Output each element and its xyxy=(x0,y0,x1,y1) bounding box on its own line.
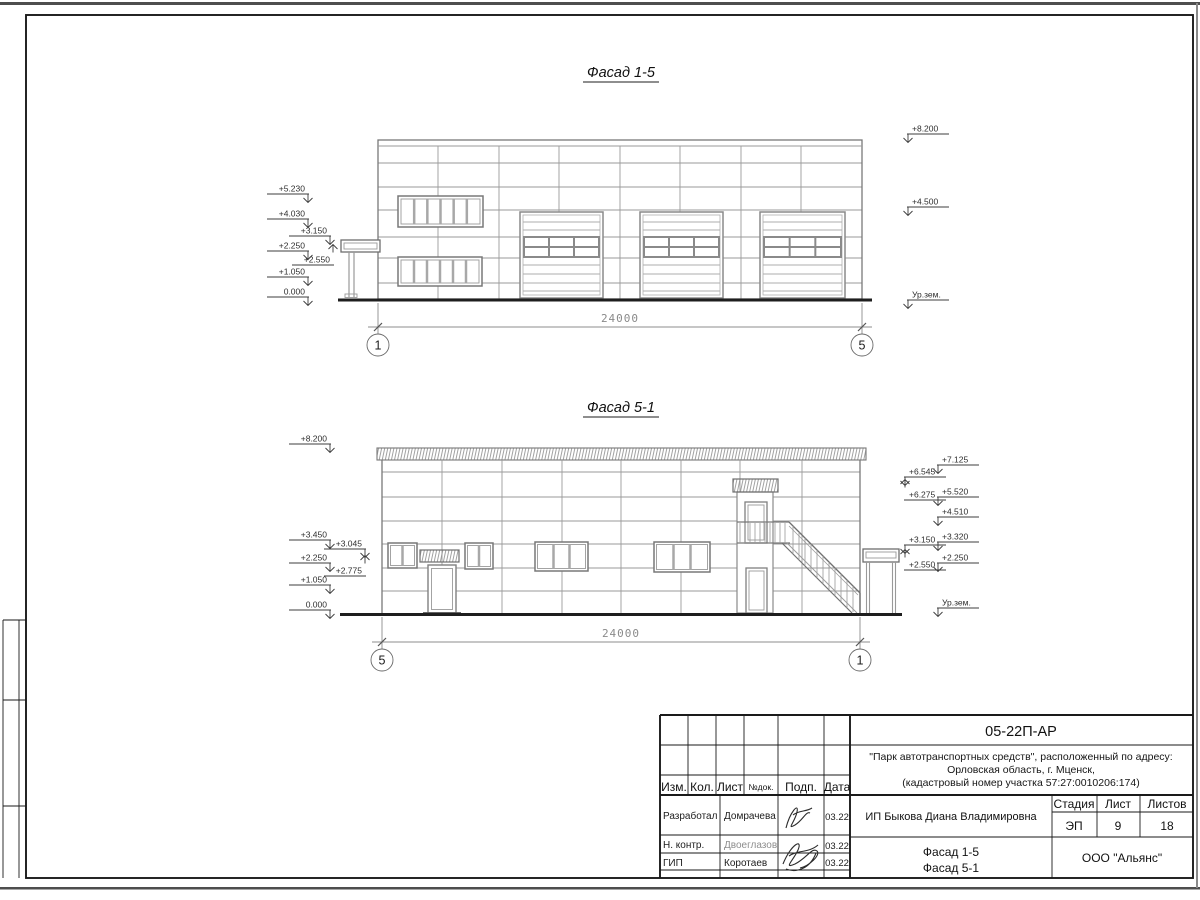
col-list: Лист xyxy=(717,780,744,794)
garage-door xyxy=(520,212,603,298)
elevation-value: 0.000 xyxy=(284,287,306,297)
col-podp: Подп. xyxy=(785,780,817,794)
row1-role: Разработал xyxy=(663,810,718,822)
elevation-mark: +8.200 xyxy=(904,124,950,143)
row2-role: Н. контр. xyxy=(663,840,704,851)
client-name: ИП Быкова Диана Владимировна xyxy=(865,811,1037,823)
axis-bubble-5: 5 xyxy=(371,649,393,671)
elevation-value: Ур.зем. xyxy=(942,598,971,608)
row3-role: ГИП xyxy=(663,858,683,869)
parapet-cap xyxy=(377,448,866,460)
elevation-value: +3.045 xyxy=(336,539,363,549)
elevation-mark: +2.250 xyxy=(289,553,335,572)
sheet-label: Лист xyxy=(1105,797,1132,811)
row2-name: Двоеглазов xyxy=(724,840,777,851)
elevation-mark: +3.150 xyxy=(901,535,947,554)
dimension-top: 24000 xyxy=(368,303,872,334)
elevation-value: +4.030 xyxy=(279,209,306,219)
company-name: ООО "Альянс" xyxy=(1082,851,1162,865)
stair-tower xyxy=(733,479,778,613)
elevation-value: +2.550 xyxy=(909,560,936,570)
sheet-number: 9 xyxy=(1115,819,1122,833)
elevation-value: +3.320 xyxy=(942,532,969,542)
elevation-mark: +2.550 xyxy=(901,550,947,571)
ribbon-window xyxy=(398,257,482,286)
col-izm: Изм. xyxy=(661,780,687,794)
elevation-mark: 0.000 xyxy=(267,287,313,306)
col-ndok: №док. xyxy=(749,782,774,792)
col-kol: Кол. xyxy=(690,780,714,794)
elevation-mark: Ур.зем. xyxy=(904,290,950,309)
left-margin-stamp xyxy=(3,620,26,878)
elevation-mark: +1.050 xyxy=(267,267,313,286)
stage-label: Стадия xyxy=(1054,797,1095,811)
elevation-mark: +6.545 xyxy=(901,467,947,486)
stage-value: ЭП xyxy=(1065,819,1082,833)
dimension-bottom: 24000 xyxy=(372,617,870,649)
facade-bottom-title: Фасад 5-1 xyxy=(587,400,655,416)
elevation-mark: +5.230 xyxy=(267,184,313,203)
elevation-mark: 0.000 xyxy=(289,600,335,619)
elevation-mark: +8.200 xyxy=(289,434,335,453)
elevation-value: +2.550 xyxy=(304,255,331,265)
dimension-text: 24000 xyxy=(602,627,640,640)
elevation-value: +3.150 xyxy=(301,226,328,236)
drawing-title-1: Фасад 1-5 xyxy=(923,845,979,859)
entrance-canopy-right xyxy=(863,549,899,614)
facade-5-1-drawing: 24000 5 1 Фасад 5-1 xyxy=(340,400,902,671)
entrance-canopy-left xyxy=(341,240,380,298)
project-line2: Орловская область, г. Мценск, xyxy=(947,764,1095,776)
drawing-sheet: 24000 1 5 Фасад 1-5 xyxy=(0,0,1200,900)
elevation-value: +2.250 xyxy=(301,553,328,563)
doc-number: 05-22П-АР xyxy=(985,724,1057,740)
svg-text:1: 1 xyxy=(375,339,382,353)
elevation-mark: +7.125 xyxy=(934,455,980,474)
elevation-value: +2.250 xyxy=(942,553,969,563)
col-data: Дата xyxy=(824,780,851,794)
facade-top-title: Фасад 1-5 xyxy=(587,65,656,81)
elevation-value: 0.000 xyxy=(306,600,328,610)
elevation-value: +8.200 xyxy=(301,434,328,444)
svg-text:5: 5 xyxy=(859,339,866,353)
row3-date: 03.22 xyxy=(825,858,849,869)
garage-door xyxy=(640,212,723,298)
elevation-mark: +3.450 xyxy=(289,530,335,549)
drawing-title-2: Фасад 5-1 xyxy=(923,861,979,875)
drawing-canvas: 24000 1 5 Фасад 1-5 xyxy=(0,0,1200,900)
title-block: Изм. Кол. Лист №док. Подп. Дата 05-22П-А… xyxy=(660,715,1193,878)
svg-text:5: 5 xyxy=(379,654,386,668)
row1-name: Домрачева xyxy=(724,811,776,822)
facade-1-5-drawing: 24000 1 5 Фасад 1-5 xyxy=(338,65,873,356)
row3-name: Коротаев xyxy=(724,858,767,869)
scan-edge-bottom xyxy=(0,887,1200,890)
elevation-mark: +5.520 xyxy=(934,487,980,506)
elevation-value: +4.500 xyxy=(912,197,939,207)
scan-edge-right xyxy=(1196,3,1198,888)
elevation-value: +6.275 xyxy=(909,490,936,500)
window xyxy=(654,542,710,572)
ribbon-window xyxy=(398,196,483,227)
elevation-value: +5.520 xyxy=(942,487,969,497)
elevation-value: +7.125 xyxy=(942,455,969,465)
elevation-value: +1.050 xyxy=(279,267,306,277)
elevation-value: +3.450 xyxy=(301,530,328,540)
elevation-mark: +2.250 xyxy=(934,553,980,572)
elevation-value: +2.775 xyxy=(336,566,363,576)
dimension-text: 24000 xyxy=(601,312,639,325)
svg-text:1: 1 xyxy=(857,654,864,668)
stair-canopy xyxy=(733,479,778,492)
elevation-value: +8.200 xyxy=(912,124,939,134)
window xyxy=(465,543,493,569)
row2-date: 03.22 xyxy=(825,841,849,852)
elevation-value: +2.250 xyxy=(279,241,306,251)
axis-bubble-1: 1 xyxy=(367,334,389,356)
row1-date: 03.22 xyxy=(825,812,849,823)
window xyxy=(388,543,417,568)
elevation-mark: Ур.зем. xyxy=(934,598,980,617)
project-line1: "Парк автотранспортных средств", располо… xyxy=(869,751,1172,763)
elevation-value: +4.510 xyxy=(942,507,969,517)
elevation-mark: +4.500 xyxy=(904,197,950,216)
elevation-value: Ур.зем. xyxy=(912,290,941,300)
sheets-total: 18 xyxy=(1160,819,1174,833)
elevation-mark: +2.775 xyxy=(324,556,370,577)
garage-door xyxy=(760,212,845,298)
elevation-value: +6.545 xyxy=(909,467,936,477)
axis-bubble-1: 1 xyxy=(849,649,871,671)
elevation-mark: +4.510 xyxy=(934,507,980,526)
elevation-value: +1.050 xyxy=(301,575,328,585)
elevation-mark: +3.320 xyxy=(934,532,980,551)
elevation-value: +3.150 xyxy=(909,535,936,545)
axis-bubble-5: 5 xyxy=(851,334,873,356)
signature-2 xyxy=(783,844,818,871)
window xyxy=(535,542,588,571)
project-line3: (кадастровый номер участка 57:27:0010206… xyxy=(902,777,1139,789)
scan-edge-top xyxy=(0,2,1200,5)
signature-1 xyxy=(786,808,812,828)
elevation-mark: +1.050 xyxy=(289,575,335,594)
elevation-value: +5.230 xyxy=(279,184,306,194)
sheets-label: Листов xyxy=(1148,797,1187,811)
